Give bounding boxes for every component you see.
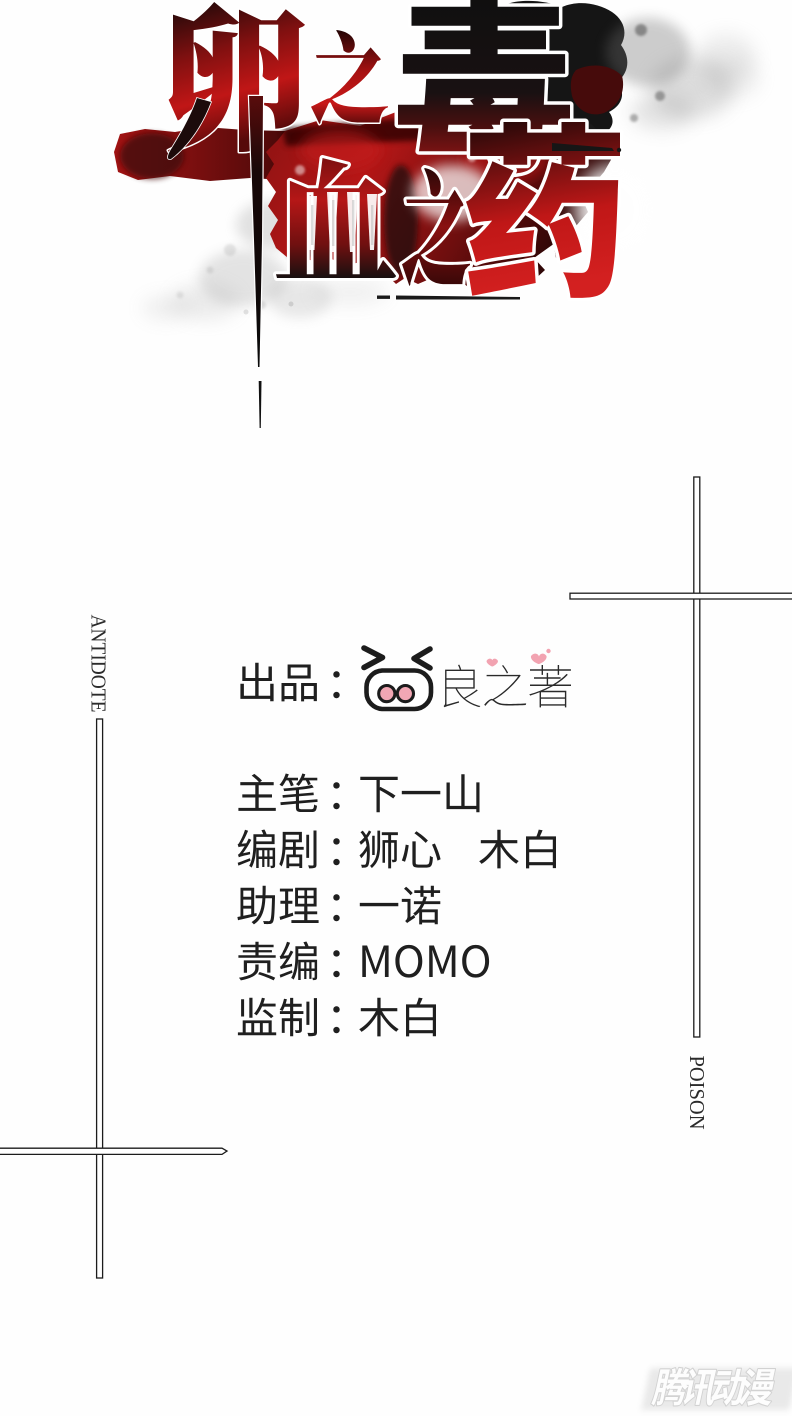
svg-text:POISON: POISON [685,1056,709,1130]
svg-text:ANTIDOTE: ANTIDOTE [87,615,111,713]
